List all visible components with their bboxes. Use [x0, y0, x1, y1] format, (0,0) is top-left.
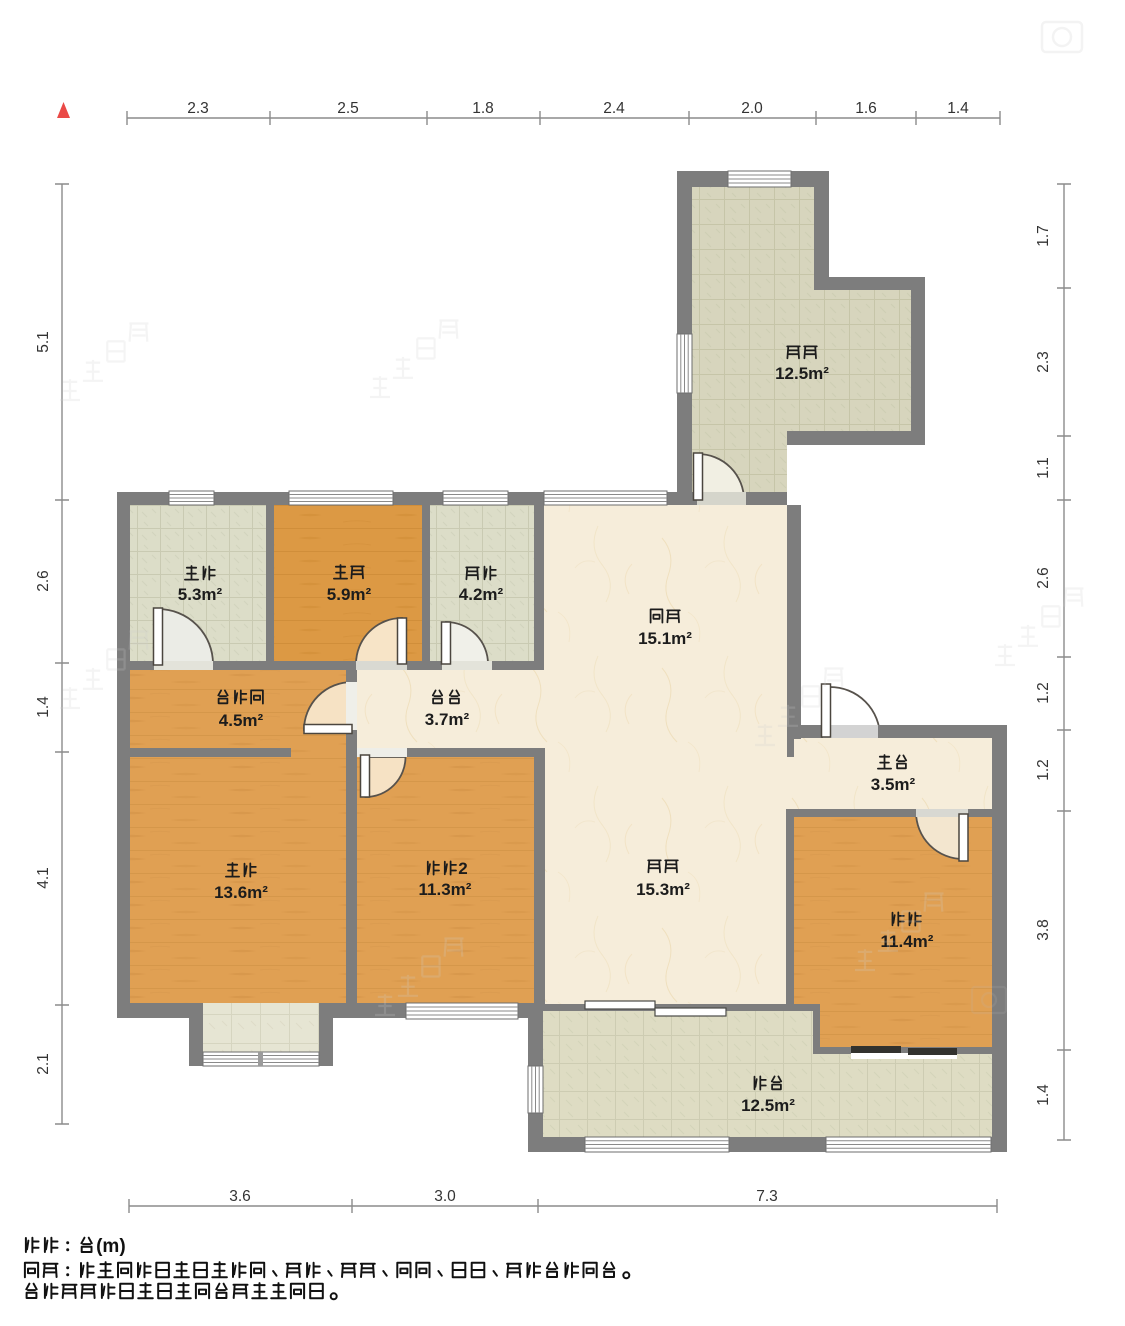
svg-text:11.3m²: 11.3m² [419, 880, 472, 899]
svg-text:1.7: 1.7 [1035, 225, 1052, 247]
svg-text:4.5m²: 4.5m² [219, 711, 264, 730]
svg-text:1.4: 1.4 [35, 696, 52, 718]
svg-text:3.6: 3.6 [229, 1188, 251, 1205]
svg-text:2.3: 2.3 [187, 100, 209, 117]
svg-text:(m): (m) [96, 1236, 126, 1257]
svg-text:12.5m²: 12.5m² [741, 1096, 795, 1115]
svg-text:1.4: 1.4 [947, 100, 969, 117]
svg-text:2.0: 2.0 [741, 100, 763, 117]
svg-text:5.9m²: 5.9m² [327, 585, 372, 604]
svg-text:5.1: 5.1 [35, 331, 52, 353]
svg-text:15.3m²: 15.3m² [636, 880, 690, 899]
svg-text:1.6: 1.6 [855, 100, 877, 117]
svg-text:2.3: 2.3 [1035, 351, 1052, 373]
svg-text:2: 2 [458, 859, 467, 878]
svg-text:13.6m²: 13.6m² [214, 883, 268, 902]
svg-text:12.5m²: 12.5m² [775, 364, 829, 383]
svg-text:1.2: 1.2 [1035, 759, 1052, 781]
svg-text:2.5: 2.5 [337, 100, 359, 117]
svg-text:5.3m²: 5.3m² [178, 585, 223, 604]
svg-text:1.8: 1.8 [472, 100, 494, 117]
svg-text:15.1m²: 15.1m² [638, 629, 692, 648]
svg-text:2.4: 2.4 [603, 100, 625, 117]
svg-text:1.1: 1.1 [1035, 457, 1052, 479]
svg-text:7.3: 7.3 [756, 1188, 778, 1205]
svg-text:4.2m²: 4.2m² [459, 585, 504, 604]
svg-text:3.7m²: 3.7m² [425, 710, 470, 729]
svg-text:3.0: 3.0 [434, 1188, 456, 1205]
svg-text:3.8: 3.8 [1035, 919, 1052, 941]
svg-text:2.6: 2.6 [35, 570, 52, 592]
svg-text:1.2: 1.2 [1035, 682, 1052, 704]
svg-text:4.1: 4.1 [35, 867, 52, 889]
svg-text:2.1: 2.1 [35, 1053, 52, 1075]
svg-text:2.6: 2.6 [1035, 567, 1052, 589]
svg-text:1.4: 1.4 [1035, 1084, 1052, 1106]
svg-text:3.5m²: 3.5m² [871, 775, 916, 794]
